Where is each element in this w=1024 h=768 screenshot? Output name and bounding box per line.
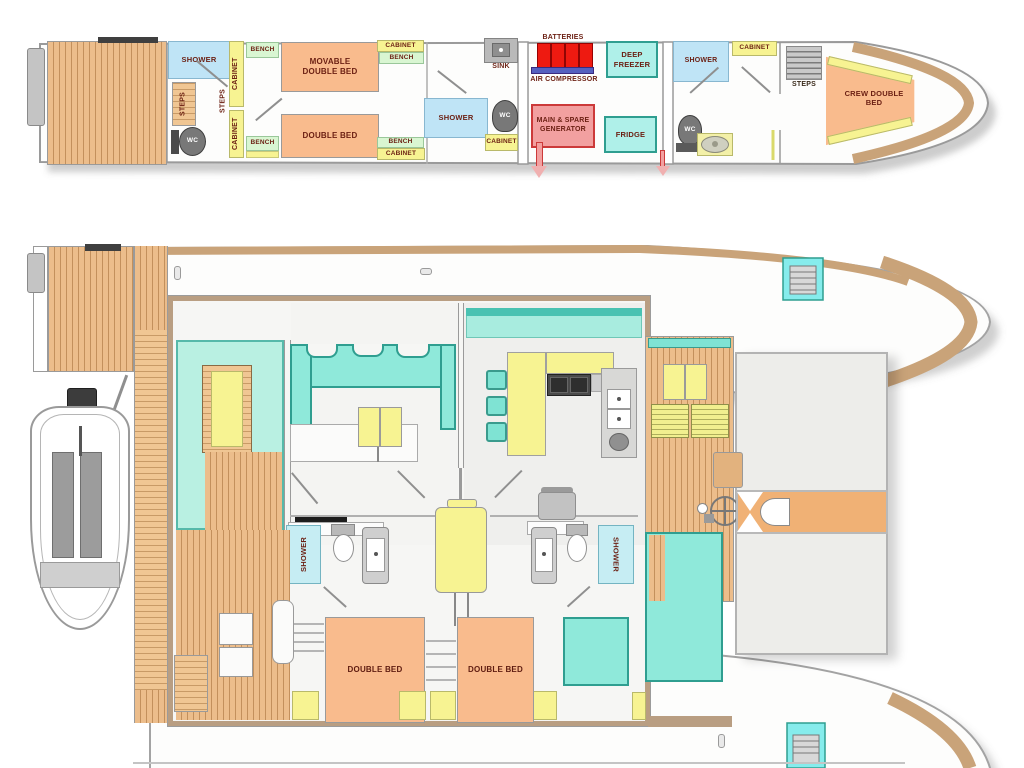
bow-sink-drain [712, 141, 718, 147]
wc-icon-mid: WC [492, 100, 518, 132]
bench-mid-top: BENCH [379, 52, 424, 64]
deck-latch [420, 268, 432, 275]
wc-icon-aft: WC [179, 127, 206, 156]
shower-starboard-label: SHOWER [598, 525, 634, 584]
aft-deck-hatch [85, 244, 121, 251]
bed-cushion [430, 691, 456, 720]
cabinet-mid-top: CABINET [377, 40, 424, 52]
gangway-roller [760, 498, 790, 526]
catamaran-floor-plans: SHOWER CABINET BENCH MOVABLE DOUBLE BED … [0, 0, 1024, 768]
fridge-box: FRIDGE [604, 116, 657, 153]
dinghy-floor-panel [80, 452, 102, 558]
cabinet-tall-aft: CABINET [229, 110, 244, 158]
double-bed-aft: DOUBLE BED [281, 114, 379, 158]
nav-desk-leg [454, 593, 456, 626]
aft-wood-deck [47, 41, 167, 165]
cockpit-column [272, 600, 294, 664]
deck-table [663, 364, 685, 400]
cabinet-under-wc: CABINET [485, 134, 518, 151]
bar-stool [486, 396, 507, 416]
main-deck-plan: SHOWER DOUBLE BED SHOWER DOUBLE BED [0, 230, 1024, 768]
helm-pedestal [704, 514, 714, 523]
dinghy-floor-panel [52, 452, 74, 558]
wc-tank-aft [171, 130, 179, 154]
sofa-cushion [352, 344, 384, 357]
deck-latch [174, 266, 181, 280]
helm-knob [697, 503, 708, 514]
desk-chair-seat [538, 492, 576, 520]
batteries-label: BATTERIES [530, 34, 596, 43]
step-line [426, 653, 456, 655]
stove-burner [550, 377, 568, 393]
sink-label: SINK [484, 63, 518, 72]
bed-cushion [399, 691, 426, 720]
shower-mid-label: SHOWER [424, 98, 488, 138]
upper-deck-plan: SHOWER CABINET BENCH MOVABLE DOUBLE BED … [0, 0, 1024, 200]
deck-bench-teal [648, 338, 731, 348]
aft-deck-wood [48, 246, 134, 372]
lounge-wood-floor [205, 452, 282, 530]
double-bed-starboard: DOUBLE BED [457, 617, 534, 723]
cabinet-bow: CABINET [732, 41, 777, 56]
shower-aft-label: SHOWER [168, 41, 230, 79]
cabinet-mid-bottom: CABINET [377, 148, 425, 160]
dinghy-bench [40, 562, 120, 588]
steps-bow-label: STEPS [786, 81, 822, 90]
exhaust-arrow [536, 142, 543, 168]
bench-seat-pad [246, 151, 279, 158]
shower-bow-label: SHOWER [673, 41, 729, 82]
sun-lounger-cushion [211, 371, 243, 447]
bench-bottom: BENCH [246, 136, 279, 151]
dinghy-tiller [79, 426, 82, 456]
deep-freezer-box: DEEP FREEZER [606, 41, 658, 78]
bed-cushion [292, 691, 319, 720]
salon-sofa-right [440, 344, 456, 430]
steps-bow-icon [786, 46, 822, 80]
walkway-wall-tan [648, 716, 732, 727]
cockpit-seat-wood-edge [649, 535, 665, 601]
salon-table-top [380, 407, 402, 447]
bench-top: BENCH [246, 42, 279, 58]
deck-table [685, 364, 707, 400]
shower-port-label: SHOWER [286, 525, 321, 584]
galley-burner-round [609, 433, 629, 451]
cockpit-steps [174, 655, 208, 712]
bed-cushion [632, 692, 646, 720]
starboard-berth-seat [563, 617, 629, 686]
bar-stool [486, 422, 507, 442]
bar-stool [486, 370, 507, 390]
galley-sink-drain [617, 397, 621, 401]
salon-table-leg [377, 447, 379, 462]
stove-burner [570, 377, 588, 393]
sink-drain [499, 48, 503, 52]
cockpit-table [219, 647, 253, 677]
sofa-cushion [396, 344, 430, 358]
crew-double-bed-label: CREW DOUBLE BED [832, 82, 916, 114]
salon-sofa-left [290, 344, 312, 430]
vanity-drain [374, 552, 378, 556]
toilet-icon [333, 534, 354, 562]
air-compressor-unit [531, 67, 594, 74]
sofa-cushion [306, 344, 338, 358]
corridor-wall [459, 468, 462, 502]
step-line [426, 679, 456, 681]
walkway-steps-planks [134, 330, 168, 690]
steps-aft-1: STEPS [172, 82, 196, 126]
deck-lounger [651, 404, 689, 438]
salon-table-top [358, 407, 380, 447]
galley-sink-drain [617, 417, 621, 421]
deck-hatch [98, 37, 158, 43]
galley-window-top [466, 308, 642, 316]
batteries-block [537, 43, 593, 68]
deck-side-table [713, 452, 743, 488]
vanity-drain [542, 552, 546, 556]
step-line [426, 666, 456, 668]
exhaust-arrow-2-tip [656, 166, 670, 176]
swim-ladder-icon [27, 253, 45, 293]
exhaust-arrow-tip [531, 166, 547, 178]
step-line [426, 640, 456, 642]
bench-mid-bottom: BENCH [377, 137, 424, 148]
air-compressor-label: AIR COMPRESSOR [525, 76, 603, 85]
stern-ladder-icon [27, 48, 45, 126]
nav-desk [435, 507, 487, 593]
movable-double-bed: MOVABLE DOUBLE BED [281, 42, 379, 92]
deck-lounger [691, 404, 729, 438]
cockpit-table [219, 613, 253, 645]
toilet-icon [567, 534, 587, 562]
deck-latch [718, 734, 725, 748]
galley-counter-L-vertical [507, 352, 546, 456]
